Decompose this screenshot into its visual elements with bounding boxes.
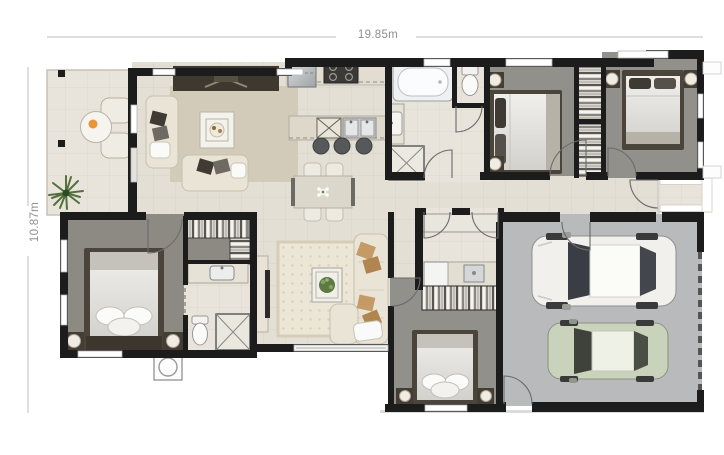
window: [78, 351, 122, 357]
porch-post: [58, 70, 65, 77]
porch-step: [702, 178, 712, 212]
washing-machine: [424, 262, 448, 286]
sofa: [182, 155, 248, 191]
window: [698, 94, 703, 118]
window: [506, 59, 552, 66]
kitchen-island: [289, 116, 388, 140]
built-in-robe: [576, 66, 602, 120]
lamp: [481, 391, 492, 402]
window: [131, 105, 137, 133]
window: [61, 240, 67, 272]
car-green: [548, 319, 668, 383]
bar-stool: [356, 138, 372, 154]
width-dimension-label: 19.85m: [340, 29, 416, 41]
toilet: [192, 316, 208, 345]
car-white: [532, 232, 676, 310]
lamp: [489, 158, 501, 170]
lamp: [606, 73, 618, 85]
window-sill: [703, 62, 721, 74]
coffee-table: [200, 112, 234, 148]
alfresco-porch: [47, 70, 132, 215]
toilet: [462, 66, 478, 96]
lamp: [685, 73, 697, 85]
porch-post: [58, 140, 65, 147]
window: [424, 59, 450, 66]
window-sill: [703, 166, 721, 178]
window: [61, 295, 67, 325]
entry-porch: [658, 178, 712, 212]
floor-plan: 19.85m 10.87m: [0, 0, 724, 455]
window: [425, 405, 467, 411]
window: [277, 69, 303, 75]
lamp: [489, 74, 501, 86]
sofa: [146, 96, 178, 168]
window: [153, 69, 175, 75]
sliding-door: [131, 148, 137, 182]
dish: [89, 120, 98, 129]
bathtub: [393, 63, 453, 101]
bed: [622, 70, 684, 150]
ensuite-vanity: [188, 263, 248, 283]
height-dimension-label: 10.87m: [29, 189, 41, 255]
window: [618, 51, 668, 58]
built-in-robe: [576, 124, 602, 176]
shower: [216, 314, 250, 350]
clothes-rack: [187, 218, 249, 238]
linen-cupboard: [420, 214, 502, 232]
porch-step: [660, 205, 706, 212]
window: [698, 142, 703, 168]
lamp: [400, 391, 411, 402]
lamp: [167, 335, 180, 348]
floor-plan-drawing: [0, 0, 724, 455]
lamp: [68, 335, 81, 348]
bar-stool: [313, 138, 329, 154]
coffee-table: [312, 268, 342, 302]
bar-stool: [334, 138, 350, 154]
built-in-robe: [422, 286, 500, 310]
bed: [412, 330, 478, 408]
bed: [84, 248, 164, 352]
